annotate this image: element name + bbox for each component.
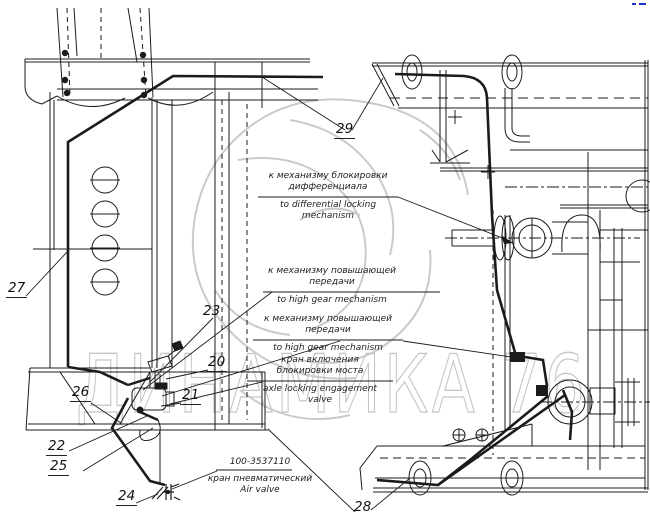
callout-26: 26	[70, 384, 91, 402]
callout-28: 28	[354, 499, 371, 515]
air-valve-symbol	[152, 484, 180, 500]
callout-23: 23	[203, 303, 220, 319]
rivets	[62, 50, 147, 98]
callout-27: 27	[6, 280, 27, 298]
diagram-page: ДИНАМИКА 76	[0, 0, 650, 522]
diagram-canvas: ДИНАМИКА 76	[0, 0, 650, 522]
callout-25: 25	[48, 458, 69, 476]
stray-blue-mark	[632, 3, 646, 5]
callout-20: 20	[206, 354, 227, 372]
callout-24: 24	[116, 488, 137, 506]
callout-29: 29	[334, 121, 355, 139]
frame-holes	[90, 167, 120, 295]
callout-22: 22	[46, 438, 67, 456]
callout-21: 21	[180, 387, 201, 405]
